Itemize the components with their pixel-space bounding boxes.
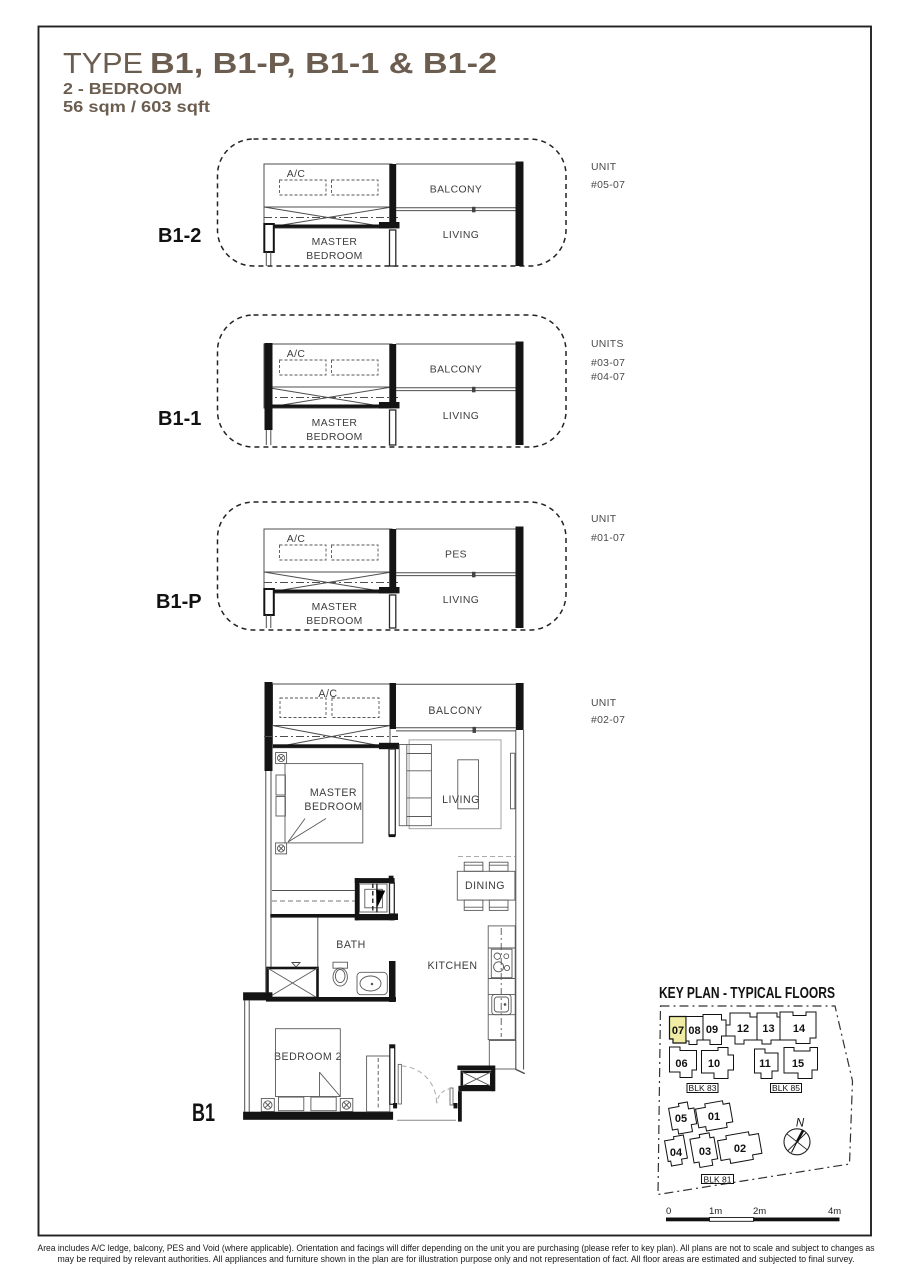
svg-text:06: 06: [675, 1058, 687, 1070]
svg-text:A/C: A/C: [287, 534, 306, 545]
svg-text:LIVING: LIVING: [443, 411, 479, 422]
svg-text:BALCONY: BALCONY: [430, 365, 482, 376]
svg-text:DINING: DINING: [465, 880, 505, 892]
svg-text:0: 0: [666, 1206, 671, 1217]
svg-text:B1-2: B1-2: [158, 225, 201, 247]
svg-text:MASTER: MASTER: [312, 418, 358, 429]
svg-text:B1-P: B1-P: [156, 591, 202, 613]
svg-text:#02-07: #02-07: [591, 715, 625, 726]
svg-text:#05-07: #05-07: [591, 180, 625, 191]
svg-text:BEDROOM: BEDROOM: [306, 432, 363, 443]
svg-text:LIVING: LIVING: [442, 794, 480, 806]
svg-text:01: 01: [708, 1111, 720, 1123]
svg-text:02: 02: [734, 1143, 746, 1155]
svg-text:14: 14: [793, 1023, 806, 1035]
svg-text:BLK 85: BLK 85: [772, 1083, 800, 1093]
svg-text:MASTER: MASTER: [312, 237, 358, 248]
svg-text:BEDROOM: BEDROOM: [306, 616, 363, 627]
svg-text:10: 10: [708, 1058, 720, 1070]
svg-text:BLK 81: BLK 81: [704, 1174, 732, 1184]
svg-text:15: 15: [792, 1058, 804, 1070]
svg-text:04: 04: [670, 1147, 683, 1159]
svg-text:#03-07: #03-07: [591, 358, 625, 369]
svg-text:BEDROOM: BEDROOM: [304, 801, 362, 813]
svg-text:09: 09: [706, 1024, 718, 1036]
svg-text:PES: PES: [445, 550, 467, 561]
svg-text:BATH: BATH: [336, 939, 365, 951]
svg-text:UNIT: UNIT: [591, 698, 617, 709]
svg-text:TYPE: TYPE: [63, 48, 143, 80]
svg-text:BALCONY: BALCONY: [428, 705, 482, 717]
svg-text:#01-07: #01-07: [591, 533, 625, 544]
svg-text:11: 11: [759, 1058, 771, 1070]
svg-text:UNIT: UNIT: [591, 514, 617, 525]
svg-text:A/C: A/C: [287, 169, 306, 180]
svg-text:UNITS: UNITS: [591, 339, 624, 350]
svg-text:N: N: [796, 1118, 805, 1130]
svg-text:03: 03: [699, 1146, 711, 1158]
svg-text:BLK 83: BLK 83: [689, 1083, 717, 1093]
svg-text:LIVING: LIVING: [443, 230, 479, 241]
svg-text:UNIT: UNIT: [591, 162, 617, 173]
svg-text:MASTER: MASTER: [310, 787, 357, 799]
svg-text:Area includes A/C ledge, balco: Area includes A/C ledge, balcony, PES an…: [38, 1243, 876, 1253]
svg-text:4m: 4m: [828, 1206, 841, 1217]
svg-text:KEY PLAN - TYPICAL FLOORS: KEY PLAN - TYPICAL FLOORS: [659, 985, 835, 1002]
svg-text:BALCONY: BALCONY: [430, 185, 482, 196]
svg-text:05: 05: [675, 1113, 687, 1125]
svg-text:B1-1: B1-1: [158, 408, 201, 430]
svg-text:#04-07: #04-07: [591, 372, 625, 383]
svg-text:MASTER: MASTER: [312, 602, 358, 613]
svg-text:A/C: A/C: [287, 349, 306, 360]
svg-text:08: 08: [688, 1025, 700, 1037]
svg-text:may be required by relevant au: may be required by relevant authorities.…: [58, 1254, 855, 1264]
svg-text:1m: 1m: [709, 1206, 722, 1217]
svg-text:13: 13: [762, 1023, 774, 1035]
svg-text:2m: 2m: [753, 1206, 766, 1217]
svg-text:12: 12: [737, 1023, 749, 1035]
svg-text:56 sqm / 603 sqft: 56 sqm / 603 sqft: [63, 99, 210, 116]
svg-text:B1: B1: [192, 1099, 215, 1127]
svg-text:KITCHEN: KITCHEN: [428, 960, 478, 972]
svg-text:LIVING: LIVING: [443, 595, 479, 606]
svg-text:2 - BEDROOM: 2 - BEDROOM: [63, 81, 182, 98]
svg-text:B1, B1-P, B1-1 & B1-2: B1, B1-P, B1-1 & B1-2: [150, 48, 497, 80]
svg-text:07: 07: [672, 1025, 684, 1037]
svg-text:BEDROOM: BEDROOM: [306, 251, 363, 262]
svg-text:BEDROOM 2: BEDROOM 2: [274, 1051, 342, 1063]
